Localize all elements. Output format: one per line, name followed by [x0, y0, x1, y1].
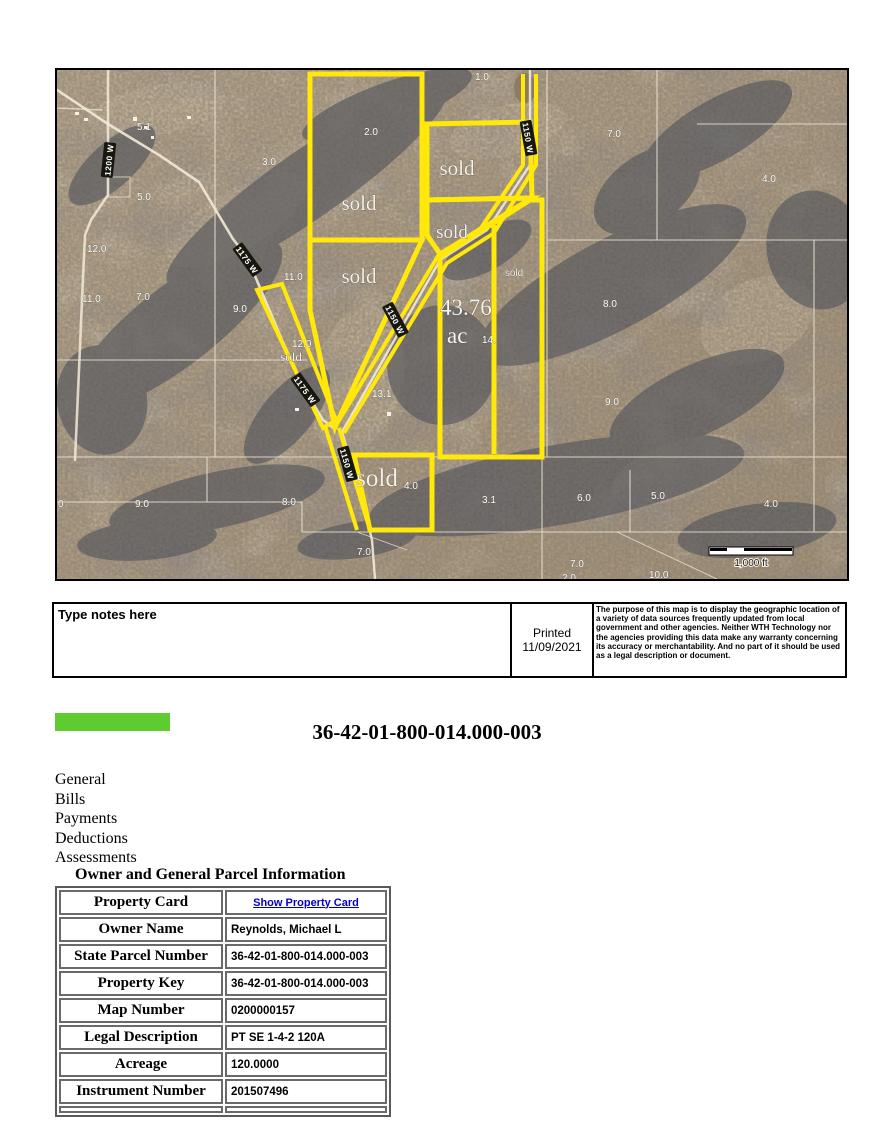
- map-area-label: 5.0: [137, 192, 151, 203]
- map-area-label: 3.0: [262, 157, 276, 168]
- map-sold-label: sold: [436, 222, 468, 243]
- table-row-partial: [59, 1106, 387, 1113]
- table-row: Acreage120.0000: [59, 1052, 387, 1077]
- property-record-page: 5.11.03.02.05.012.011.07.09.011.07.04.08…: [0, 0, 884, 1144]
- printed-label: Printed: [522, 626, 581, 640]
- row-label: Owner Name: [59, 917, 223, 942]
- row-label: Property Key: [59, 971, 223, 996]
- map-area-label: 7.0: [136, 292, 150, 303]
- map-area-label: 8.0: [603, 299, 617, 310]
- map-area-label: 11.0: [284, 272, 303, 283]
- nav-link-assessments[interactable]: Assessments: [55, 848, 137, 868]
- nav-link-deductions[interactable]: Deductions: [55, 829, 137, 849]
- nav-links: GeneralBillsPaymentsDeductionsAssessment…: [55, 770, 137, 868]
- map-area-label: 12.0: [87, 244, 107, 255]
- table-row: State Parcel Number36-42-01-800-014.000-…: [59, 944, 387, 969]
- svg-text:43.76: 43.76: [440, 295, 492, 320]
- row-value: 36-42-01-800-014.000-003: [225, 944, 387, 969]
- printed-date: 11/09/2021: [522, 640, 581, 654]
- table-row: Instrument Number201507496: [59, 1079, 387, 1104]
- scale-bar-label: 1,000 ft: [734, 558, 768, 569]
- section-heading: Owner and General Parcel Information: [75, 866, 346, 884]
- nav-link-payments[interactable]: Payments: [55, 809, 137, 829]
- row-label: Property Card: [59, 890, 223, 915]
- map-area-label: 4.0: [762, 174, 776, 185]
- map-area-label: 9.0: [135, 499, 149, 510]
- map-area-label: 4.0: [764, 499, 778, 510]
- map-area-label: 3.1: [482, 495, 496, 506]
- map-area-label: 4.0: [404, 481, 418, 492]
- map-area-label: 11.0: [82, 294, 101, 305]
- map-area-label: 5.0: [651, 491, 665, 502]
- map-area-label: 2.0: [364, 127, 378, 138]
- parcel-info-table: Property CardShow Property CardOwner Nam…: [55, 886, 391, 1117]
- page-title: 36-42-01-800-014.000-003: [0, 720, 854, 745]
- map-area-label: 10.0: [649, 570, 669, 579]
- nav-link-bills[interactable]: Bills: [55, 790, 137, 810]
- table-row: Legal DescriptionPT SE 1-4-2 120A: [59, 1025, 387, 1050]
- map-sold-label: sold: [341, 264, 377, 288]
- nav-link-general[interactable]: General: [55, 770, 137, 790]
- row-value: 120.0000: [225, 1052, 387, 1077]
- map-area-label: 7.0: [357, 547, 371, 558]
- aerial-parcel-map[interactable]: 5.11.03.02.05.012.011.07.09.011.07.04.08…: [55, 68, 849, 581]
- parcel-table-body: Property CardShow Property CardOwner Nam…: [59, 890, 387, 1113]
- row-value: 0200000157: [225, 998, 387, 1023]
- map-area-label: 14.: [482, 335, 496, 346]
- map-area-label: 9.0: [233, 304, 247, 315]
- row-value: PT SE 1-4-2 120A: [225, 1025, 387, 1050]
- map-sold-label: sold: [505, 268, 523, 279]
- disclaimer-text: The purpose of this map is to display th…: [594, 604, 845, 661]
- table-row: Property Key36-42-01-800-014.000-003: [59, 971, 387, 996]
- disclaimer-box: The purpose of this map is to display th…: [592, 602, 847, 678]
- table-row: Owner NameReynolds, Michael L: [59, 917, 387, 942]
- map-sold-label: sold: [280, 349, 302, 364]
- parcel-info-table-wrap: Property CardShow Property CardOwner Nam…: [55, 886, 391, 1117]
- map-notes-box[interactable]: Type notes here: [52, 602, 512, 678]
- map-sold-label: sold: [439, 156, 475, 180]
- map-area-label: 13.1: [372, 389, 392, 400]
- row-label: Acreage: [59, 1052, 223, 1077]
- printed-date-box: Printed 11/09/2021: [510, 602, 594, 678]
- map-area-label: 9.0: [605, 397, 619, 408]
- map-area-label: 8.0: [282, 497, 296, 508]
- row-label: State Parcel Number: [59, 944, 223, 969]
- row-value: 201507496: [225, 1079, 387, 1104]
- row-label: Instrument Number: [59, 1079, 223, 1104]
- map-area-label: 6.0: [577, 493, 591, 504]
- map-area-label: 0: [58, 499, 64, 510]
- row-value: Show Property Card: [225, 890, 387, 915]
- map-area-label: 7.0: [570, 559, 584, 570]
- notes-placeholder: Type notes here: [54, 604, 510, 625]
- map-area-label: 1.0: [475, 72, 489, 83]
- svg-text:ac: ac: [447, 323, 467, 348]
- row-label: Legal Description: [59, 1025, 223, 1050]
- row-value: Reynolds, Michael L: [225, 917, 387, 942]
- row-label: Map Number: [59, 998, 223, 1023]
- map-area-label: 5.1: [137, 122, 151, 133]
- show-property-card-link[interactable]: Show Property Card: [231, 897, 381, 909]
- map-sold-label: sold: [356, 465, 398, 492]
- map-canvas: 5.11.03.02.05.012.011.07.09.011.07.04.08…: [57, 70, 847, 579]
- map-sold-label: sold: [341, 191, 377, 215]
- table-row: Property CardShow Property Card: [59, 890, 387, 915]
- map-area-label: 7.0: [607, 129, 621, 140]
- row-value: 36-42-01-800-014.000-003: [225, 971, 387, 996]
- map-area-label: 2.0: [562, 573, 576, 579]
- table-row: Map Number0200000157: [59, 998, 387, 1023]
